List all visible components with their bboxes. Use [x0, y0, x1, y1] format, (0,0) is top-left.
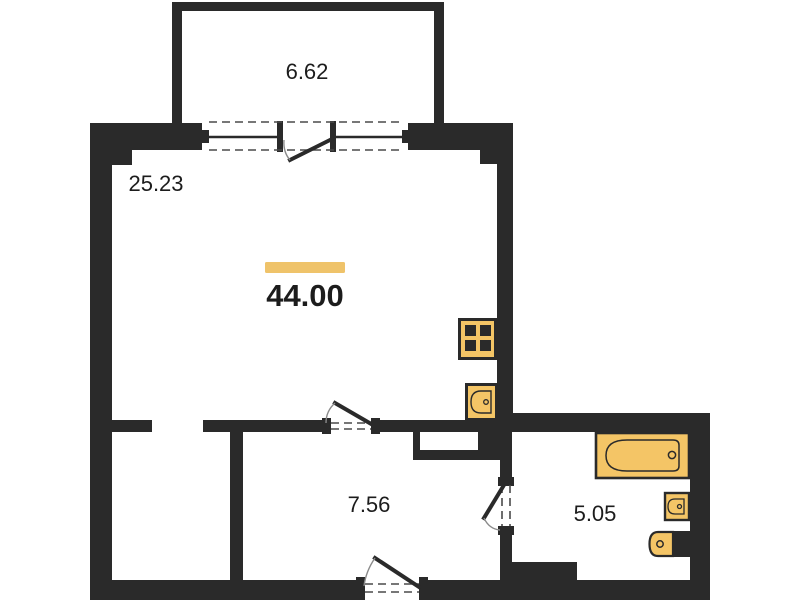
stove-burner-2 — [480, 325, 491, 336]
bathroom-area-label: 5.05 — [574, 501, 617, 526]
entry-door-nub-left — [356, 577, 365, 600]
stove-burner-1 — [465, 325, 476, 336]
top-wall-right — [408, 123, 513, 150]
window-mid-bracket-right — [330, 121, 336, 152]
interior-wall-right — [371, 420, 497, 432]
bathroom-top-wall — [497, 413, 710, 432]
stove-burner-4 — [480, 340, 491, 351]
hallway-area-label: 7.56 — [348, 492, 391, 517]
interior-wall-mid — [203, 420, 323, 432]
balcony-wall-left — [172, 2, 182, 125]
floor-plan: 6.62 25.23 44.00 7.56 5.05 — [0, 0, 800, 600]
stove-burner-3 — [465, 340, 476, 351]
balcony-door-leaf — [290, 139, 332, 160]
living-room-area-label: 25.23 — [128, 171, 183, 196]
window-end-nub-left — [202, 130, 209, 143]
bath-door-leaf — [484, 485, 504, 518]
toilet-bowl — [650, 532, 674, 556]
balcony-wall-right — [434, 2, 444, 125]
window-mid-bracket-left — [277, 121, 283, 152]
living-door-leaf — [335, 403, 373, 425]
bathtub-icon — [596, 433, 689, 478]
stove-icon — [458, 318, 497, 360]
toilet-tank — [673, 531, 690, 557]
balcony-window — [209, 122, 402, 160]
total-area-accent-bar — [265, 262, 345, 273]
bath-door-arc — [484, 518, 500, 530]
total-area-label: 44.00 — [266, 278, 344, 313]
washbasin-icon — [665, 493, 689, 520]
room-divider-wall — [230, 432, 243, 580]
right-wall — [690, 413, 710, 600]
toilet-icon — [650, 531, 691, 557]
duct-stub-wall — [512, 562, 577, 580]
balcony-area-label: 6.62 — [286, 59, 329, 84]
window-end-nub-right — [402, 130, 409, 143]
kitchen-sink-icon — [465, 383, 498, 421]
living-room-right-wall — [497, 150, 513, 432]
frame-nubs — [202, 121, 514, 600]
interior-wall-left-stub — [110, 420, 152, 432]
living-room-door — [326, 403, 373, 429]
walls — [90, 2, 710, 600]
balcony-wall-top — [172, 2, 444, 11]
left-wall — [90, 123, 112, 600]
niche-recess — [420, 432, 478, 450]
bath-door-nub-bottom — [498, 526, 514, 535]
floor-plan-page: 6.62 25.23 44.00 7.56 5.05 — [0, 0, 800, 600]
bathroom-door — [484, 485, 510, 530]
